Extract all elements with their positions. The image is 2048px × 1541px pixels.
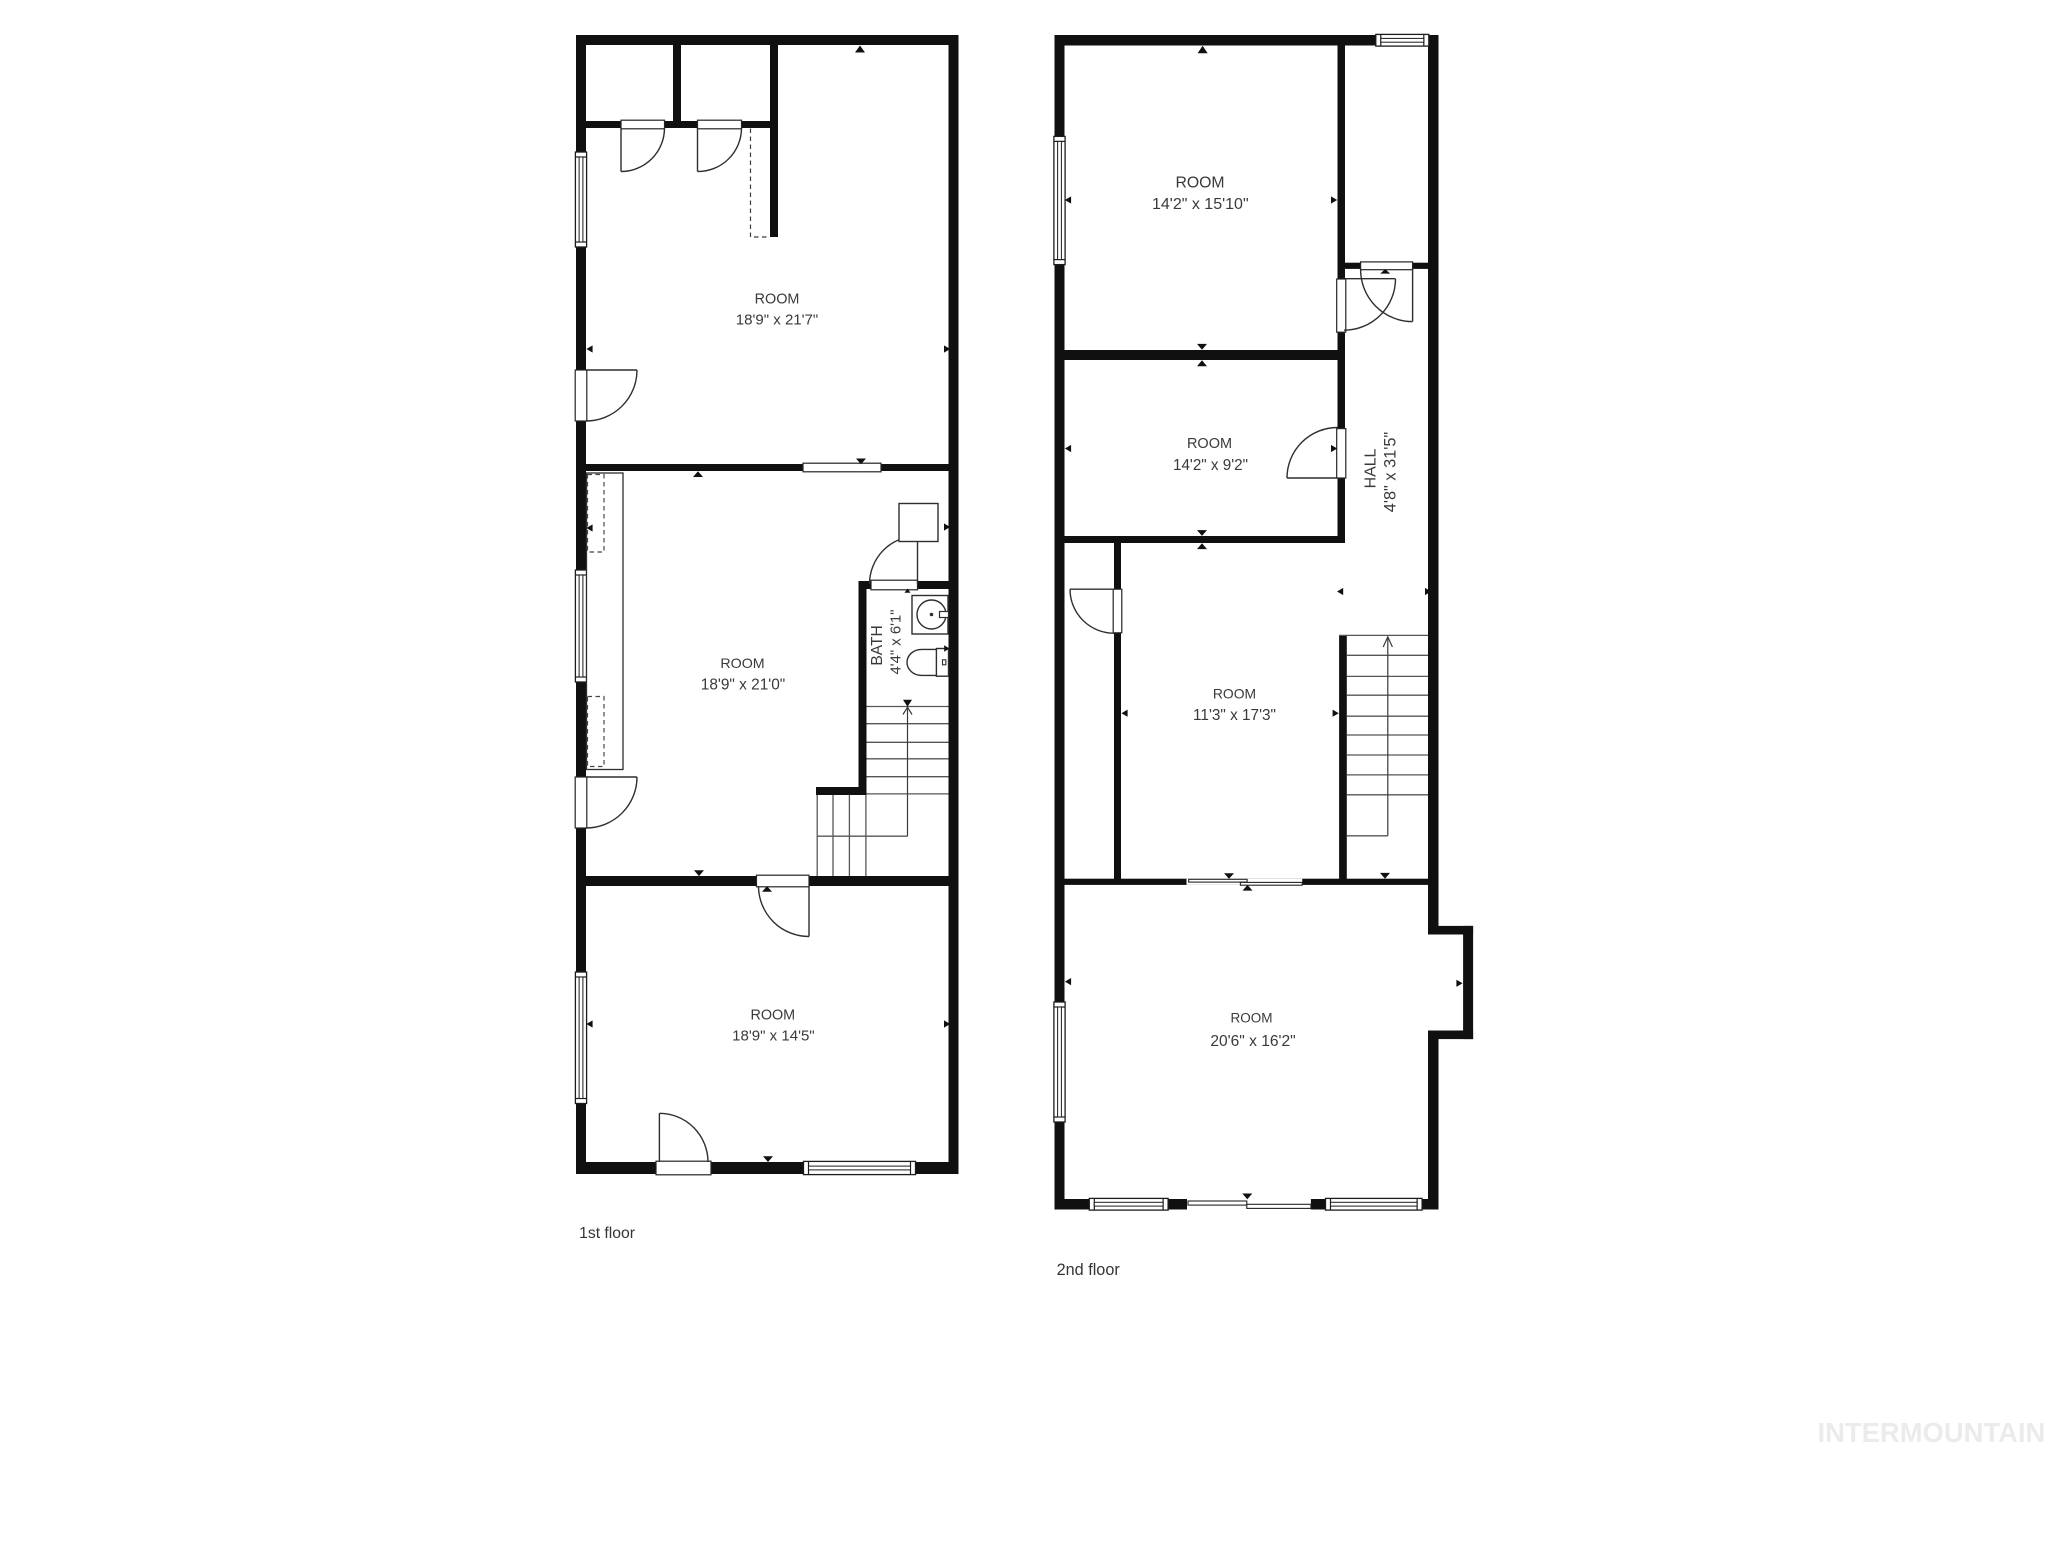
svg-text:ROOM: ROOM [755,291,800,307]
svg-text:18'9" x 14'5": 18'9" x 14'5" [732,1028,815,1045]
svg-text:ROOM: ROOM [1213,686,1256,702]
svg-text:HALL: HALL [1362,448,1379,488]
svg-text:4'4" x 6'1": 4'4" x 6'1" [889,609,905,674]
svg-text:INTERMOUNTAIN: INTERMOUNTAIN [1818,1417,2046,1448]
svg-text:BATH: BATH [869,625,886,665]
svg-text:1st floor: 1st floor [579,1225,635,1242]
svg-text:ROOM: ROOM [750,1008,795,1024]
svg-text:ROOM: ROOM [1231,1010,1273,1025]
svg-text:18'9" x 21'0": 18'9" x 21'0" [701,676,786,693]
svg-text:ROOM: ROOM [1175,175,1224,192]
svg-text:18'9" x 21'7": 18'9" x 21'7" [736,312,819,329]
svg-text:ROOM: ROOM [720,656,764,672]
svg-text:4'8" x 31'5": 4'8" x 31'5" [1382,432,1400,513]
svg-text:11'3" x 17'3": 11'3" x 17'3" [1193,707,1276,724]
svg-text:2nd floor: 2nd floor [1057,1261,1121,1279]
svg-text:14'2" x 9'2": 14'2" x 9'2" [1173,457,1248,474]
svg-text:20'6" x 16'2": 20'6" x 16'2" [1210,1033,1295,1050]
svg-text:ROOM: ROOM [1187,436,1232,452]
svg-text:14'2" x 15'10": 14'2" x 15'10" [1152,196,1249,213]
